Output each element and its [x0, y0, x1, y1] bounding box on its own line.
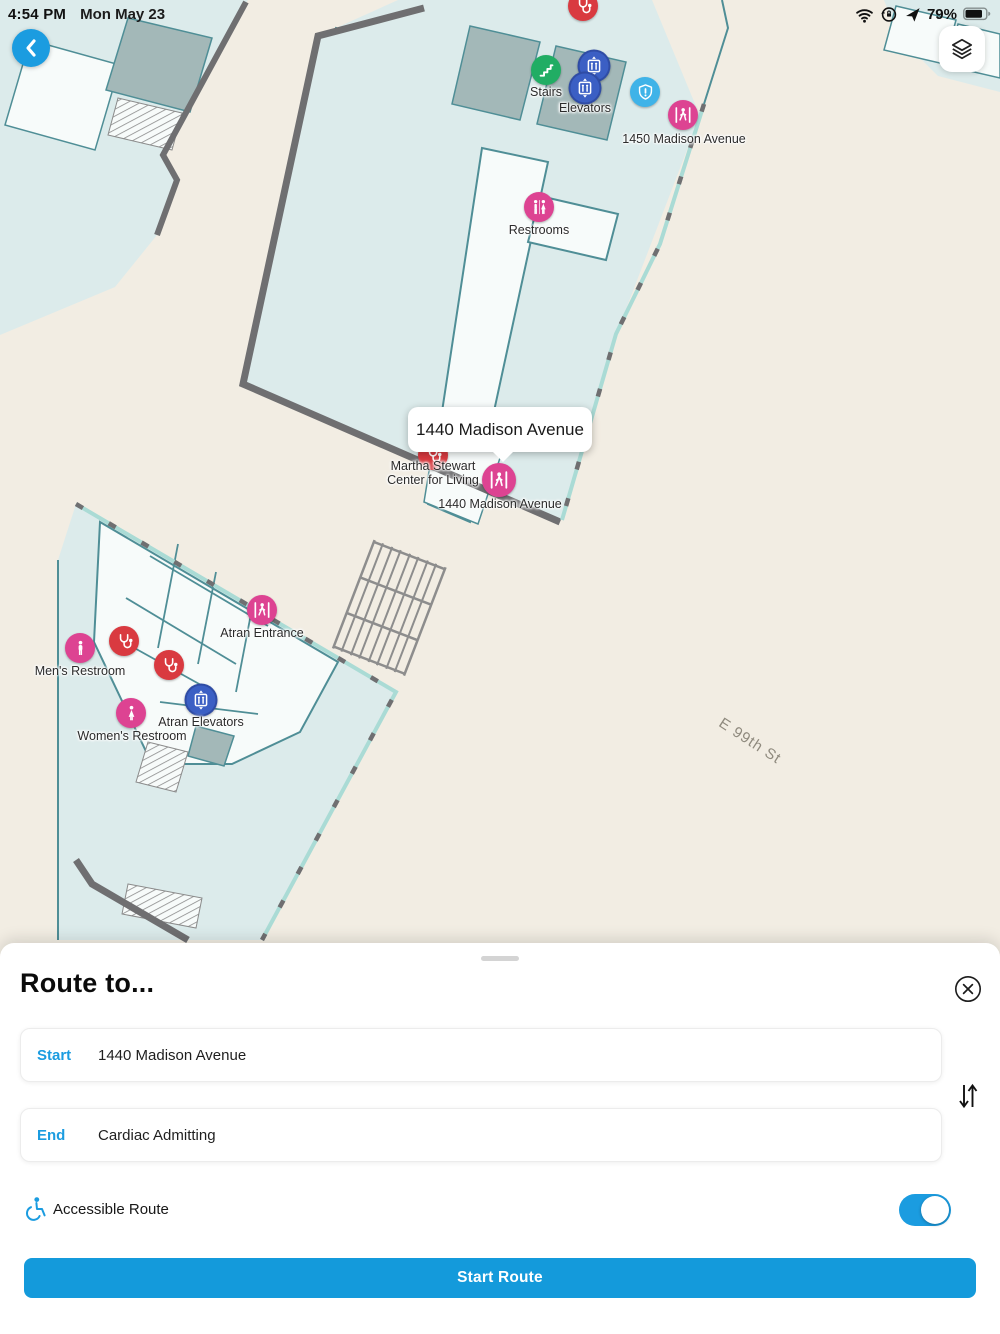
entrance-marker-1440[interactable]: [482, 463, 516, 497]
man-icon: [71, 639, 90, 658]
atran-elevators-marker[interactable]: [185, 684, 218, 717]
toggle-knob: [921, 1196, 949, 1224]
start-route-label: Start Route: [457, 1269, 543, 1287]
martha-stewart-label: Martha Stewart Center for Living: [387, 459, 479, 487]
start-field[interactable]: Start 1440 Madison Avenue: [20, 1028, 942, 1082]
swap-vertical-icon: [955, 1081, 981, 1111]
accessible-route-row: Accessible Route: [0, 1188, 1000, 1232]
wifi-icon: [855, 6, 874, 23]
location-callout[interactable]: 1440 Madison Avenue: [408, 407, 592, 452]
elevator-marker-a[interactable]: [569, 72, 602, 105]
restrooms-icon: [529, 197, 550, 218]
sheet-drag-handle[interactable]: [481, 956, 519, 961]
status-bar: 4:54 PM Mon May 23 79%: [0, 0, 1000, 26]
layers-button[interactable]: [939, 26, 985, 72]
womens-restroom-label: Women's Restroom: [77, 729, 186, 743]
close-circle-icon: [954, 975, 982, 1003]
security-marker[interactable]: [630, 77, 660, 107]
sheet-title: Route to...: [20, 968, 154, 999]
restrooms-label: Restrooms: [509, 223, 569, 237]
walking-person-icon: [488, 469, 510, 491]
martha-line2: Center for Living: [387, 473, 479, 487]
entrance-marker-1450[interactable]: [668, 100, 698, 130]
start-value: 1440 Madison Avenue: [98, 1047, 246, 1064]
clock: 4:54 PM: [8, 6, 66, 23]
elevator-icon: [191, 690, 212, 711]
martha-line1: Martha Stewart: [387, 459, 479, 473]
walking-person-icon: [252, 600, 272, 620]
date: Mon May 23: [80, 6, 165, 23]
woman-icon: [122, 704, 141, 723]
medical-marker-a[interactable]: [109, 626, 139, 656]
stethoscope-icon: [160, 656, 179, 675]
end-value: Cardiac Admitting: [98, 1127, 216, 1144]
womens-restroom-marker[interactable]: [116, 698, 146, 728]
wheelchair-icon: [22, 1196, 46, 1222]
shield-icon: [636, 83, 655, 102]
end-field[interactable]: End Cardiac Admitting: [20, 1108, 942, 1162]
accessible-route-label: Accessible Route: [53, 1201, 169, 1218]
medical-marker-b[interactable]: [154, 650, 184, 680]
stairs-marker[interactable]: [531, 55, 561, 85]
start-label: Start: [37, 1047, 83, 1064]
stairs-label: Stairs: [530, 85, 562, 99]
battery-percent: 79%: [927, 6, 957, 23]
orientation-lock-icon: [880, 5, 898, 23]
stairs-icon: [537, 61, 556, 80]
close-button[interactable]: [954, 975, 982, 1003]
battery-icon: [963, 7, 992, 21]
walking-person-icon: [673, 105, 693, 125]
location-arrow-icon: [904, 6, 921, 23]
entrance-1440-label: 1440 Madison Avenue: [438, 497, 561, 511]
entrance-1450-label: 1450 Madison Avenue: [622, 132, 745, 146]
end-label: End: [37, 1127, 83, 1144]
atran-entrance-label: Atran Entrance: [220, 626, 303, 640]
mens-restroom-marker[interactable]: [65, 633, 95, 663]
swap-start-end-button[interactable]: [955, 1081, 981, 1111]
back-button[interactable]: [12, 29, 50, 67]
wayfinding-app: 4:54 PM Mon May 23 79%: [0, 0, 1000, 1334]
restrooms-marker[interactable]: [524, 192, 554, 222]
elevator-icon: [575, 78, 596, 99]
stethoscope-icon: [115, 632, 134, 651]
accessible-route-toggle[interactable]: [899, 1194, 951, 1226]
start-route-button[interactable]: Start Route: [24, 1258, 976, 1298]
atran-entrance-marker[interactable]: [247, 595, 277, 625]
mens-restroom-label: Men's Restroom: [35, 664, 126, 678]
atran-elevators-label: Atran Elevators: [158, 715, 243, 729]
layers-icon: [949, 36, 975, 62]
callout-text: 1440 Madison Avenue: [416, 420, 584, 440]
chevron-left-icon: [23, 38, 39, 58]
